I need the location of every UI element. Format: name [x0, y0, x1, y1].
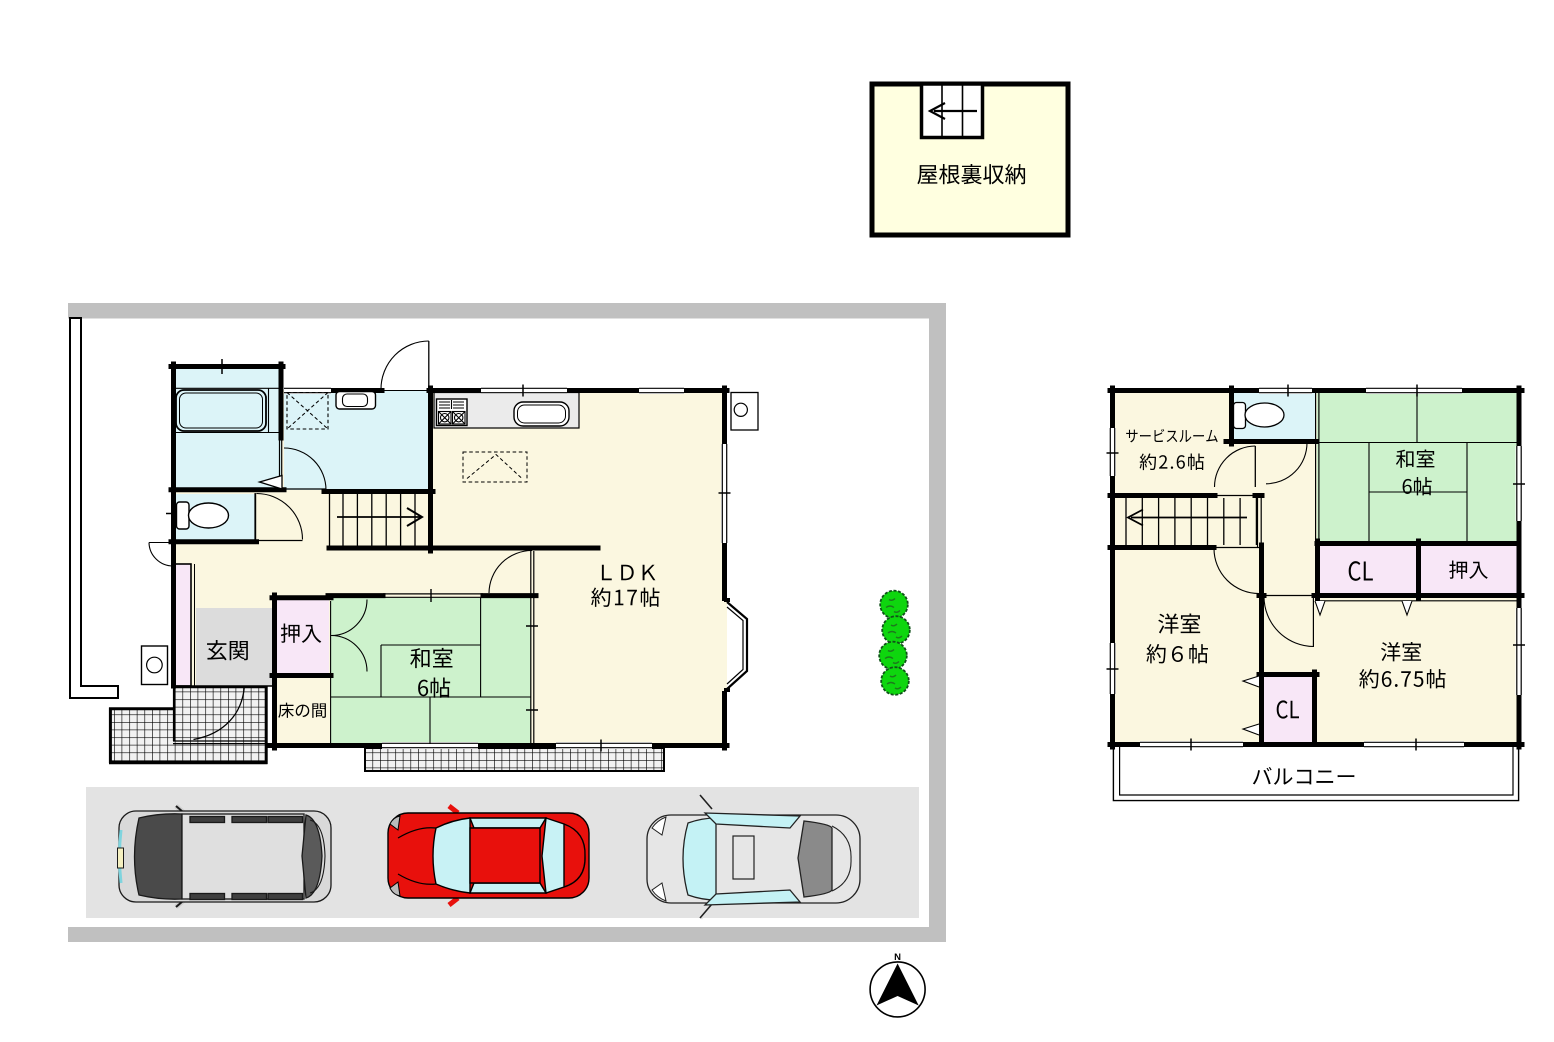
svg-text:N: N — [894, 952, 901, 963]
